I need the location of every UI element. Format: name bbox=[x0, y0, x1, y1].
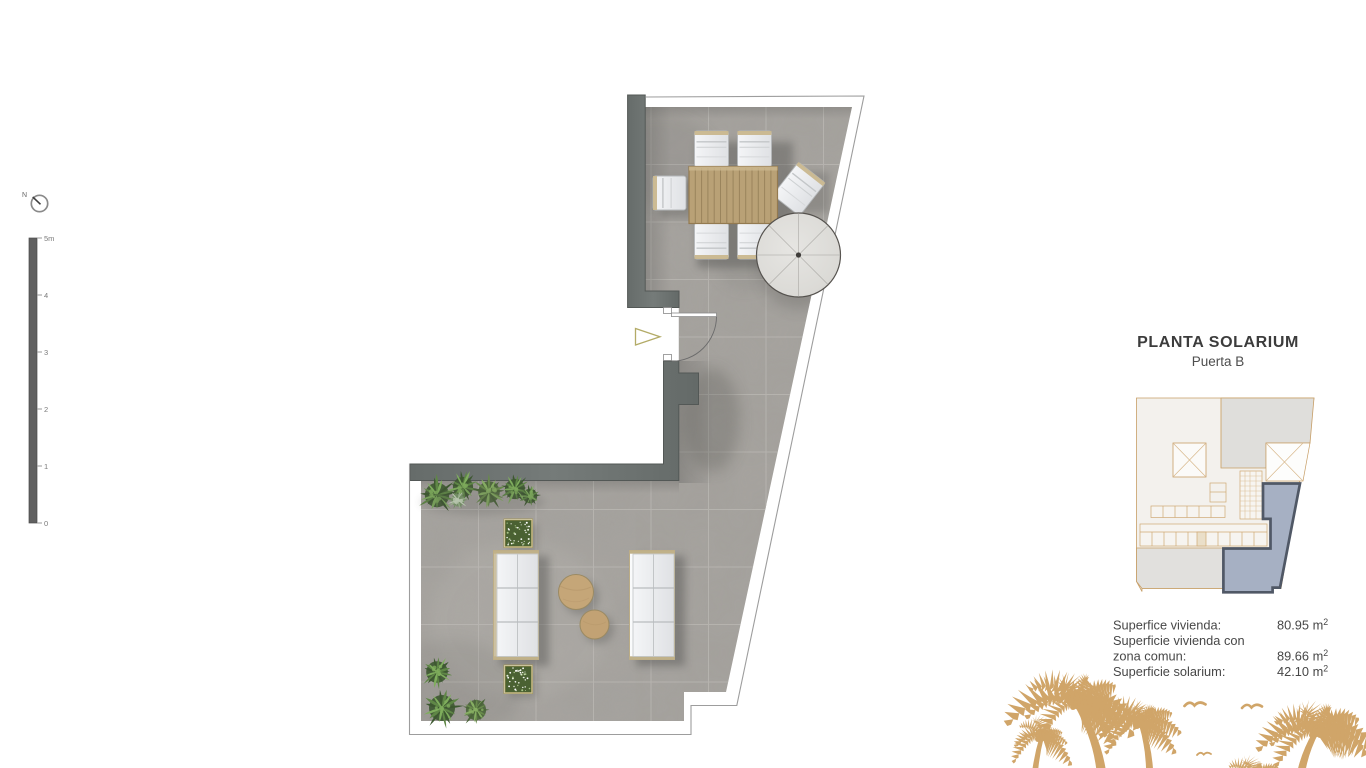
svg-text:Superficie solarium:: Superficie solarium: bbox=[1113, 664, 1225, 679]
svg-text:80.95 m2: 80.95 m2 bbox=[1277, 617, 1328, 633]
svg-text:0: 0 bbox=[44, 519, 48, 528]
svg-text:2: 2 bbox=[44, 405, 48, 414]
svg-text:zona comun:: zona comun: bbox=[1113, 649, 1186, 664]
svg-text:1: 1 bbox=[44, 462, 48, 471]
svg-text:89.66 m2: 89.66 m2 bbox=[1277, 648, 1328, 664]
svg-text:Puerta B: Puerta B bbox=[1192, 354, 1245, 369]
svg-text:N: N bbox=[22, 192, 27, 199]
svg-text:4: 4 bbox=[44, 291, 48, 300]
svg-text:5m: 5m bbox=[44, 234, 54, 243]
svg-text:Superficie vivienda con: Superficie vivienda con bbox=[1113, 633, 1245, 648]
svg-text:42.10 m2: 42.10 m2 bbox=[1277, 664, 1328, 680]
svg-text:3: 3 bbox=[44, 348, 48, 357]
svg-text:Superfice vivienda:: Superfice vivienda: bbox=[1113, 618, 1221, 633]
svg-text:PLANTA SOLARIUM: PLANTA SOLARIUM bbox=[1137, 334, 1299, 351]
